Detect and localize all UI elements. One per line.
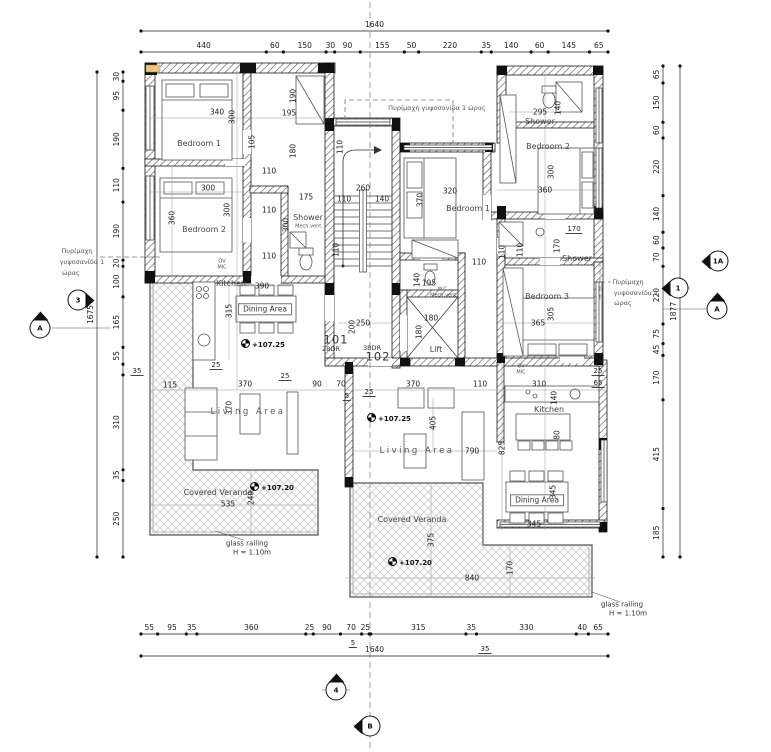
dimension-label: 150 [298, 41, 313, 50]
dimension-label: 250 [112, 511, 121, 526]
dimension-label: 60 [270, 41, 280, 50]
dimension-label: 35 [466, 623, 476, 632]
dimension-label: 70 [652, 252, 661, 262]
dimension-label: 25 [305, 623, 315, 632]
dimension-label: 35 [481, 41, 491, 50]
floor-plan-drawing: 1640440601503090155502203514060145655595… [0, 0, 771, 752]
dimension-label: 45 [652, 344, 661, 354]
fire-board-patch [146, 65, 160, 72]
dimension-label: 95 [167, 623, 177, 632]
dimension-label: 220 [652, 159, 661, 174]
dimension-label: 35 [187, 623, 197, 632]
dimension-label: 315 [411, 623, 426, 632]
dimension-label: 190 [112, 132, 121, 147]
dimension-label: 65 [593, 623, 603, 632]
dimension-label: 60 [535, 41, 545, 50]
dimension-label: 140 [652, 207, 661, 222]
dimension-label: 1640 [365, 645, 384, 654]
dimension-label: 65 [594, 41, 604, 50]
dimension-label: 140 [504, 41, 519, 50]
dimension-label: 20 [112, 258, 121, 268]
dimension-label: 30 [326, 41, 336, 50]
dimension-label: 50 [407, 41, 417, 50]
dimension-label: 60 [652, 125, 661, 135]
dimension-label: 100 [112, 274, 121, 289]
dimension-label: 440 [196, 41, 211, 50]
dimension-label: 110 [112, 178, 121, 193]
dimension-label: 30 [112, 72, 121, 82]
dimension-label: 70 [346, 623, 356, 632]
floor-plan-sheet: 1640440601503090155502203514060145655595… [0, 0, 771, 752]
furniture-layer [160, 76, 599, 523]
dimension-label: 415 [652, 447, 661, 462]
dimension-label: 145 [562, 41, 577, 50]
dimension-label: 65 [652, 70, 661, 80]
dimension-label: 55 [145, 623, 155, 632]
dimension-label: 75 [652, 329, 661, 339]
dimension-label: 1675 [86, 305, 95, 324]
dimension-label: 330 [519, 623, 534, 632]
dimension-label: 1877 [669, 302, 678, 321]
dimension-label: 220 [652, 288, 661, 303]
dimension-label: 170 [652, 370, 661, 385]
dimension-label: 190 [112, 224, 121, 239]
dimension-label: 155 [375, 41, 390, 50]
staircase [334, 146, 392, 272]
dimension-label: 40 [578, 623, 588, 632]
dimension-label: 25 [361, 623, 371, 632]
dimension-label: 35 [112, 470, 121, 480]
dimension-label: 55 [112, 351, 121, 361]
lift-shaft [407, 297, 458, 358]
dimension-label: 310 [112, 415, 121, 430]
dimension-label: 220 [443, 41, 458, 50]
dimension-label: 1640 [365, 20, 384, 29]
dimension-label: 150 [652, 95, 661, 110]
dimension-label: 60 [652, 235, 661, 245]
dimension-label: 360 [244, 623, 259, 632]
dimension-label: 90 [343, 41, 353, 50]
dimension-label: 165 [112, 315, 121, 330]
dimension-label: 95 [112, 91, 121, 101]
dimension-label: 185 [652, 525, 661, 540]
dimension-label: 90 [322, 623, 332, 632]
